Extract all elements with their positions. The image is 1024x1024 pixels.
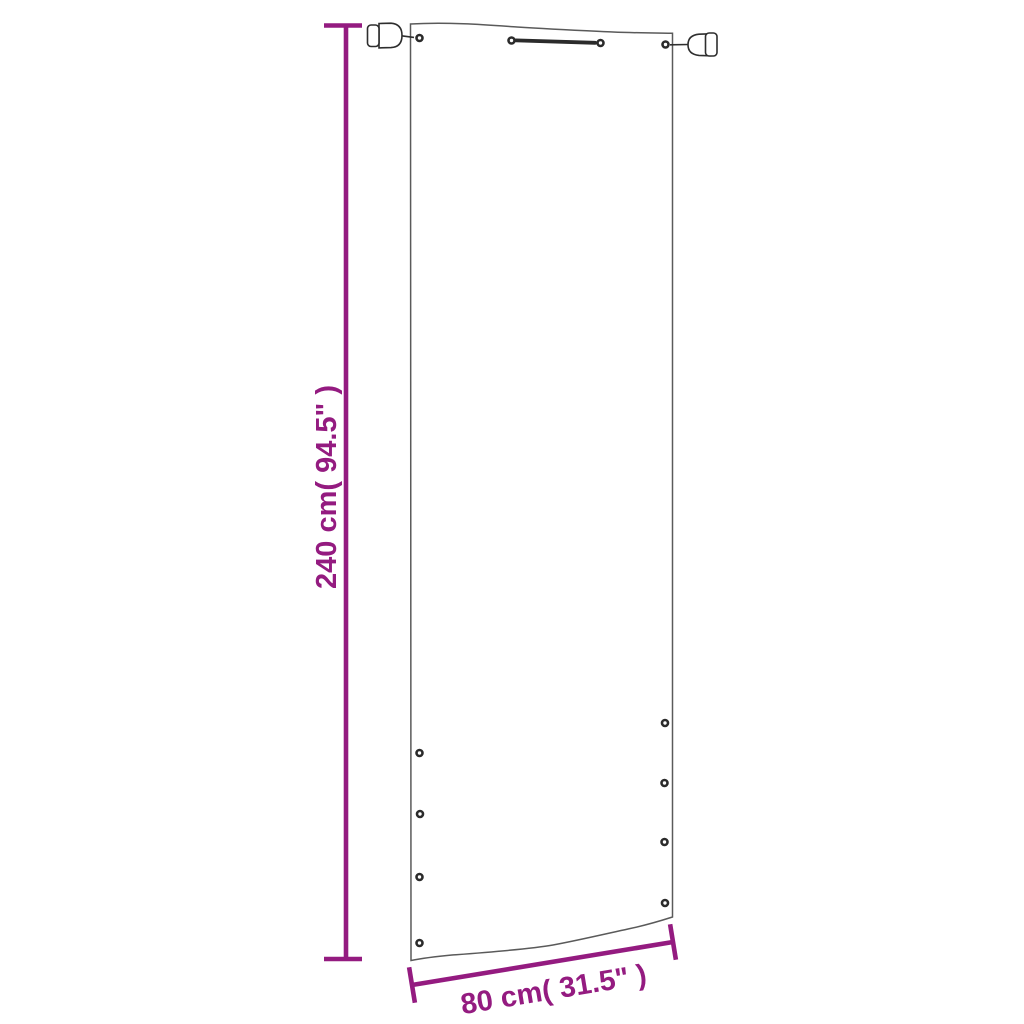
grommet-top-right: [663, 42, 669, 48]
clamp-left-body: [379, 23, 402, 48]
height-dimension-label: 240 cm( 94.5" ): [311, 385, 343, 589]
clamp-right-roller: [706, 33, 718, 56]
height-dimension: 240 cm( 94.5" ): [311, 26, 362, 960]
grommet-top-mid-left: [509, 38, 515, 44]
width-dimension-cap-right: [670, 924, 676, 960]
width-dimension-label: 80 cm( 31.5" ): [458, 959, 649, 1021]
grommet-left-3: [417, 874, 423, 880]
panel-outline: [411, 23, 673, 960]
grommet-right-2: [662, 780, 668, 786]
clamp-left-roller: [368, 25, 380, 47]
strap-rod: [516, 40, 595, 42]
grommet-top-mid-right: [598, 40, 604, 46]
hanging-strap: [516, 40, 595, 42]
mounting-clamp-right: [670, 33, 717, 56]
product-dimension-diagram: 240 cm( 94.5" ) 80 cm( 31.5" ): [0, 0, 1024, 1024]
grommet-right-1: [662, 720, 668, 726]
mounting-clamp-left: [368, 23, 415, 48]
screen-panel: [411, 23, 673, 960]
grommet-left-1: [417, 750, 423, 756]
grommet-right-3: [662, 839, 668, 845]
grommet-left-2: [417, 811, 423, 817]
grommet-right-4: [662, 900, 668, 906]
diagram-canvas: 240 cm( 94.5" ) 80 cm( 31.5" ): [0, 0, 1024, 1024]
grommet-top-left: [417, 35, 423, 41]
grommet-left-4: [417, 940, 423, 946]
width-dimension-cap-left: [409, 967, 415, 1003]
